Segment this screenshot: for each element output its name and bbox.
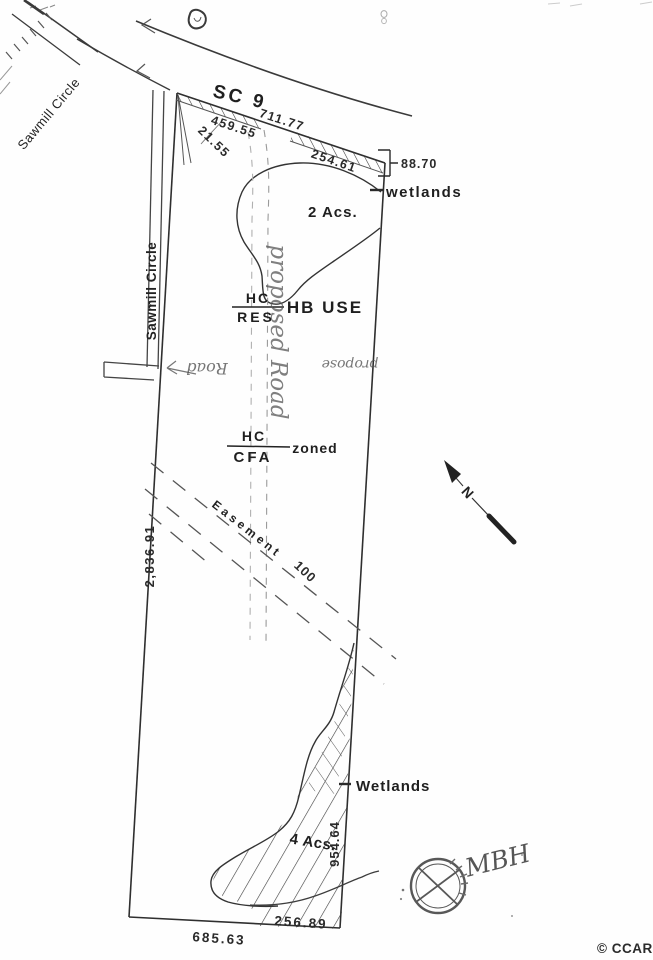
dim-256-89: 256.89 [274,913,328,932]
dim-685-63: 685.63 [192,929,246,948]
boundary-right-line [340,163,385,928]
sawmill-circle-diagonal-label: Sawmill Circle [14,75,82,153]
zoning-lower-numerator: HC [242,428,266,444]
plat-map: N SC 9 Sawmill Circle Sawmill Circle 711… [0,0,653,960]
road-note: Road [186,359,228,378]
sc9-upper-edge [136,21,412,116]
surveyor-initials: MBH [461,838,534,883]
easement-dashed-lines [145,463,396,684]
dim-711-77: 711.77 [258,106,307,134]
sawmill-circle-diagonal-road [0,0,98,94]
west-road-stub [104,362,159,380]
upper-wetlands-label: wetlands [385,184,462,201]
sawmill-circle-vertical-label: Sawmill Circle [144,242,159,341]
boundary-left-line [129,93,177,917]
dim-2836-91: 2,836.91 [142,525,157,588]
propose-note: propose [322,356,379,372]
corner-tie-lines [178,95,191,165]
north-label: N [458,483,477,501]
zoning-upper-note: HB USE [287,298,363,317]
dim-easement-100: 100 [291,558,319,586]
zoning-lower-note: zoned [292,440,337,456]
lower-wetlands-label: Wetlands [356,778,430,795]
upper-wetland-acreage: 2 Acs. [308,204,358,221]
dim-88-70: 88.70 [401,157,437,171]
upper-wetland-outline [237,163,381,304]
north-arrow: N [444,460,514,542]
surveyor-stamp [411,859,468,913]
proposed-road-vertical-note: proposed Road [265,244,291,419]
zoning-lower-denominator: CFA [234,449,273,466]
ccar-watermark: © CCAR [597,941,653,956]
road-edge-hatch [6,13,52,59]
plat-scan-page: N SC 9 Sawmill Circle Sawmill Circle 711… [0,0,653,960]
